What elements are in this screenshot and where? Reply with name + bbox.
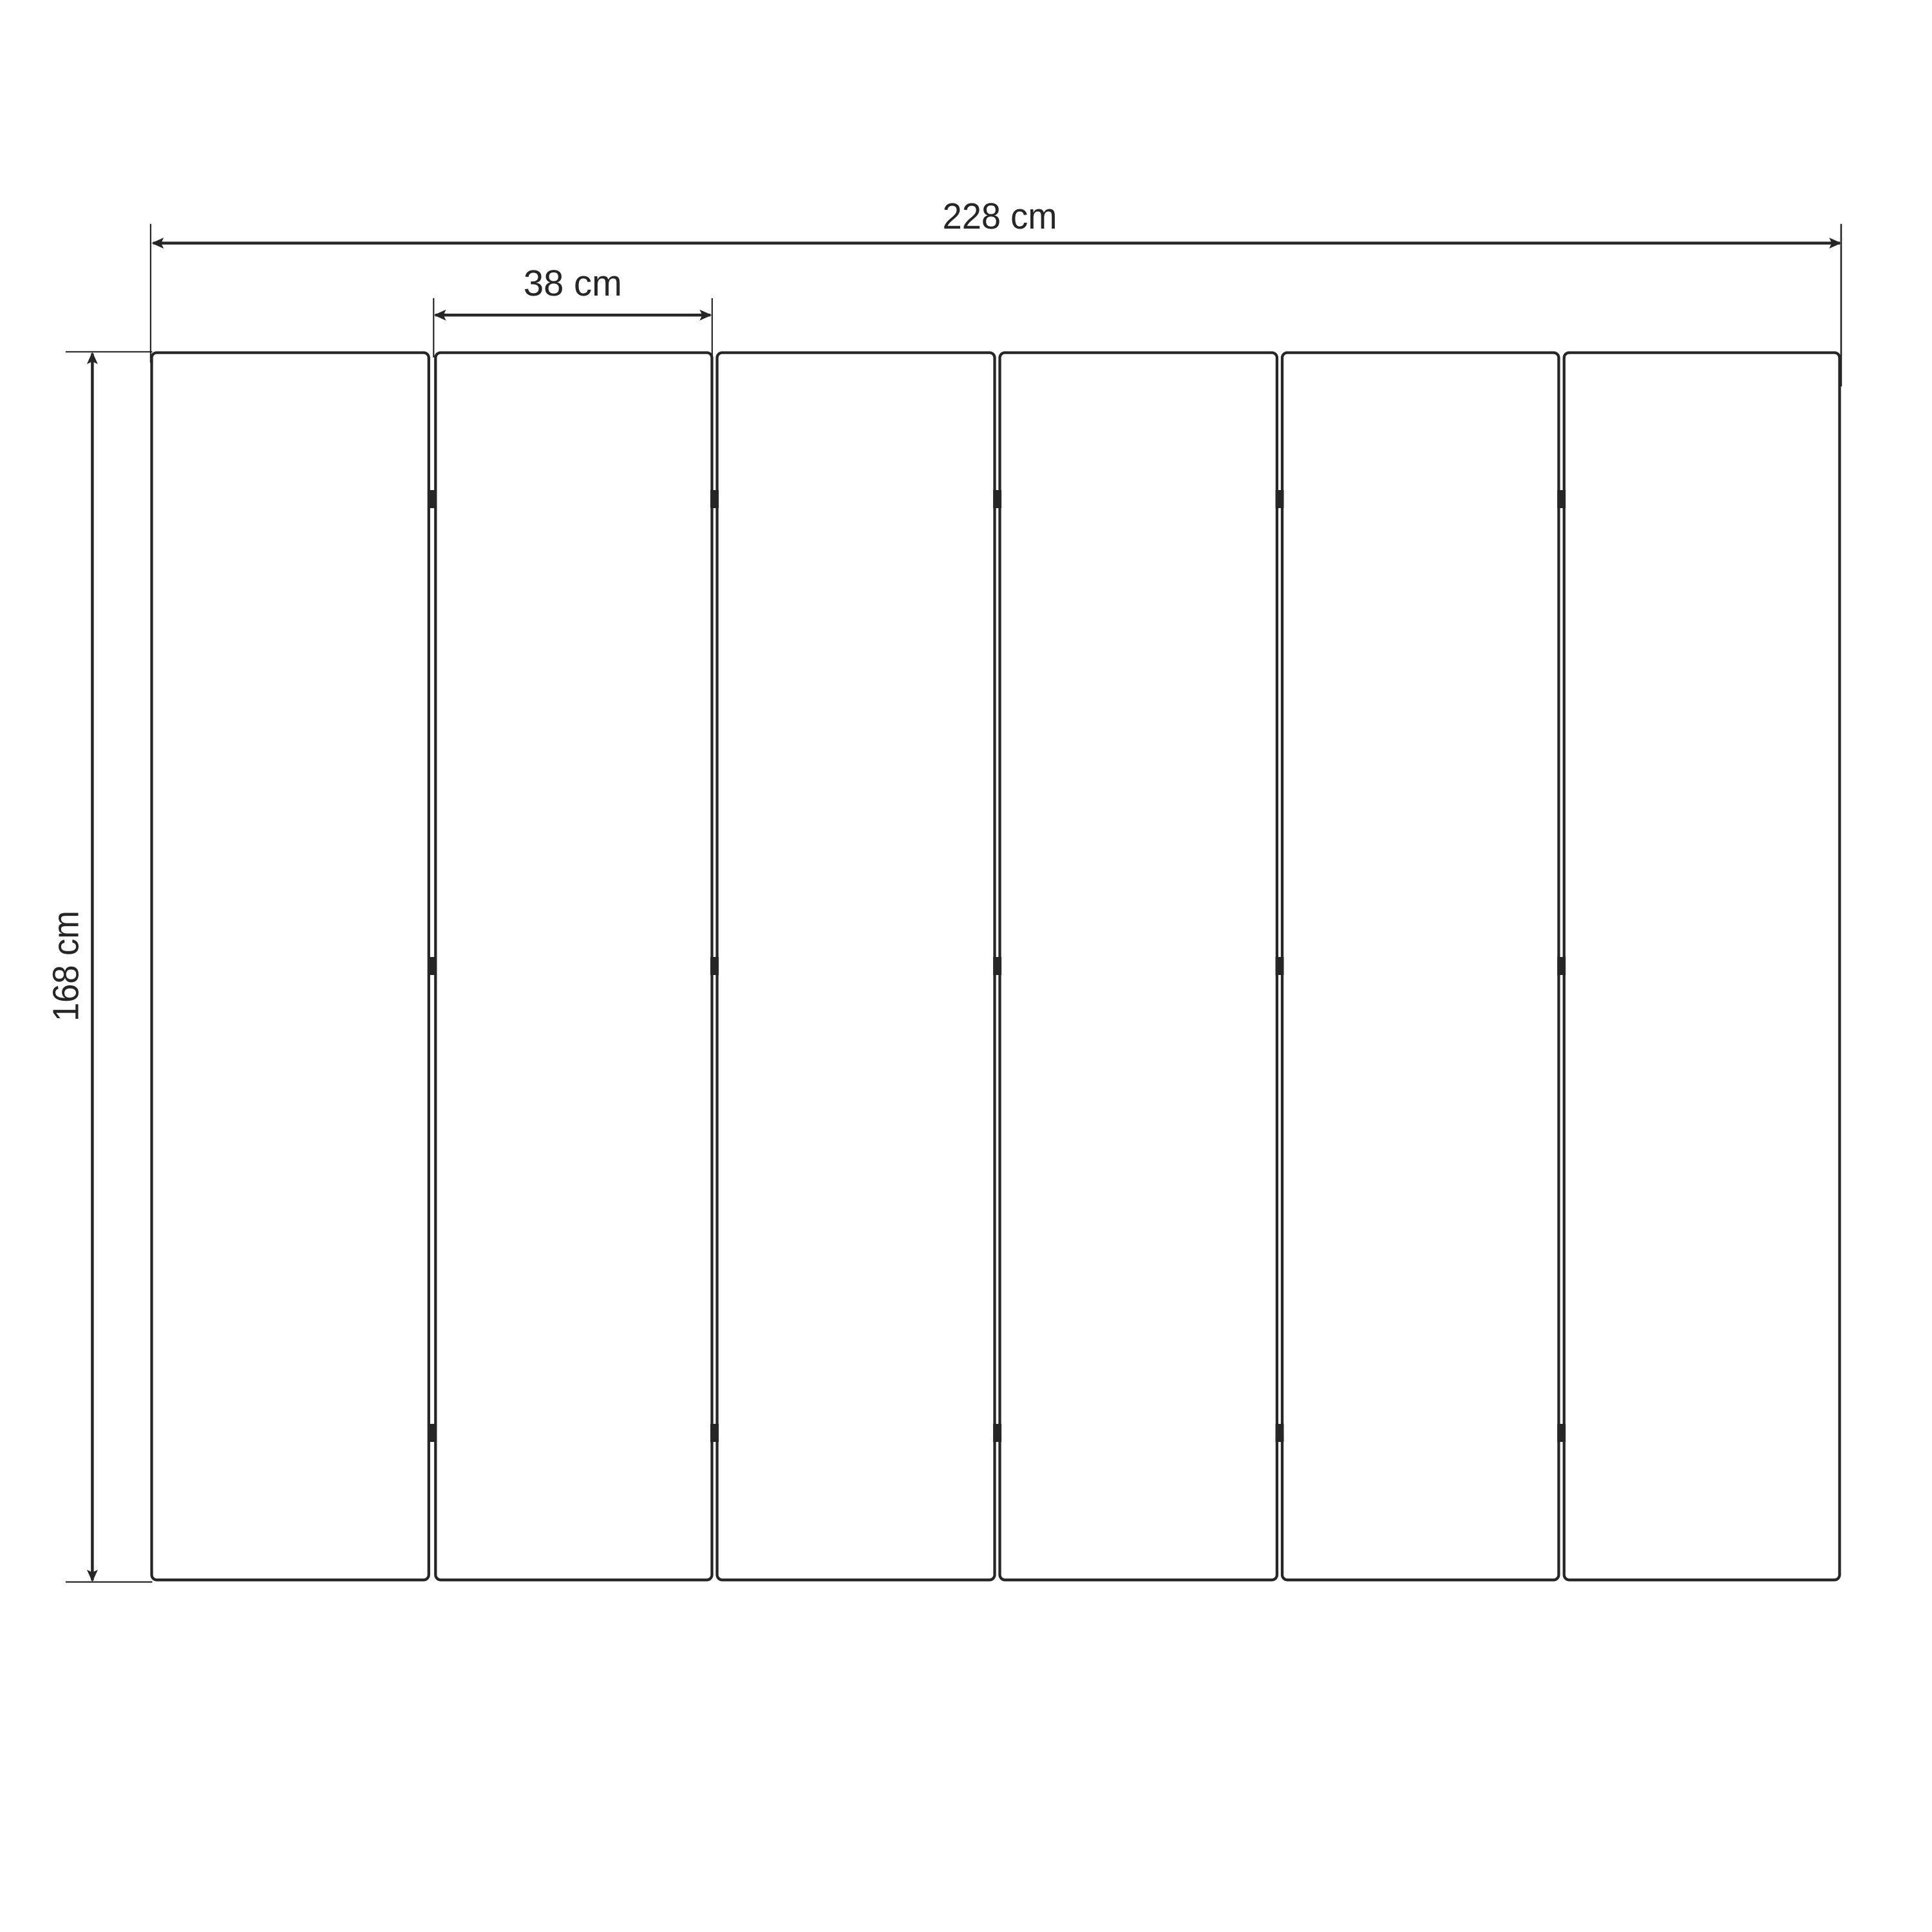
svg-text:168 cm: 168 cm — [46, 911, 87, 1021]
svg-text:38 cm: 38 cm — [524, 263, 622, 304]
svg-text:228 cm: 228 cm — [943, 196, 1057, 237]
